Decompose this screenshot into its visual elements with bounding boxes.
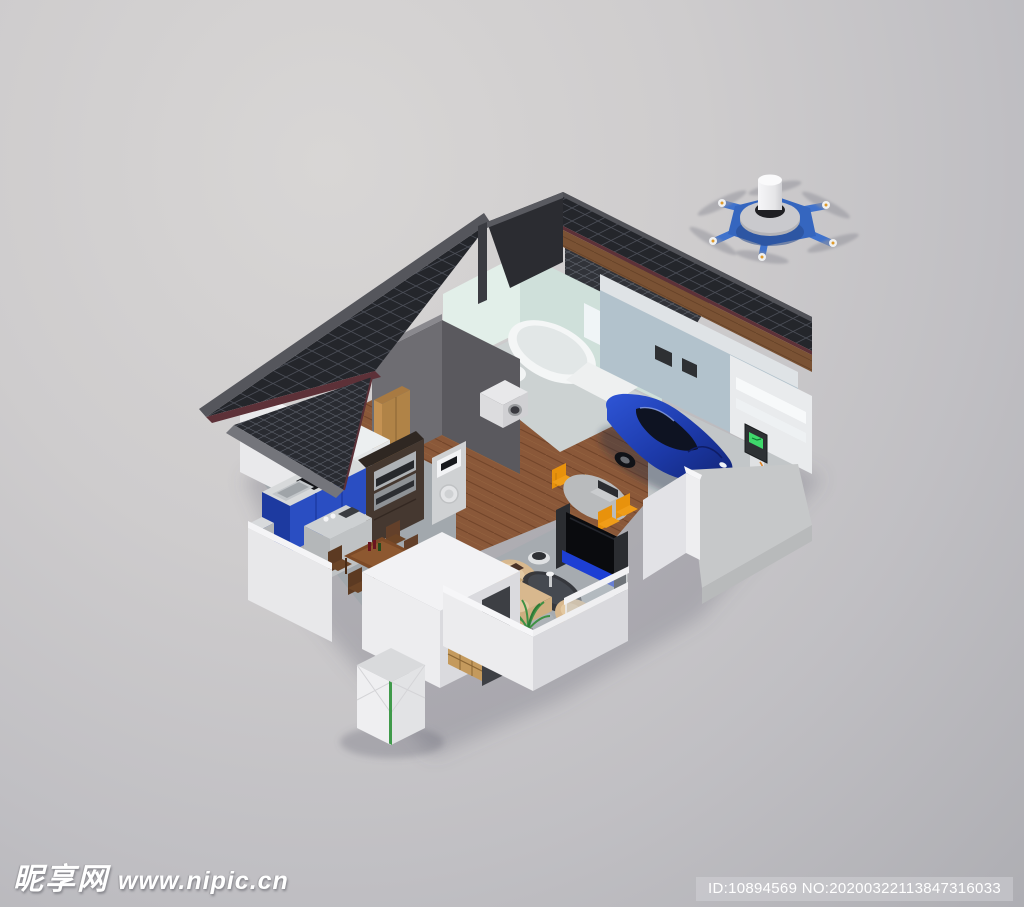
cube-green-stripe [389, 681, 392, 745]
hexacopter-drone [687, 175, 860, 267]
utility-cube [357, 648, 425, 745]
image-id-bar: ID:10894569 NO:20200322113847316033 [696, 877, 1013, 901]
watermark: 昵享网 www.nipic.cn [13, 854, 289, 898]
watermark-site-url: www.nipic.cn [118, 867, 289, 896]
watermark-site-name: 昵享网 [13, 854, 109, 898]
isometric-house-render [0, 0, 1024, 907]
render-scene: 昵享网 www.nipic.cn ID:10894569 NO:20200322… [0, 0, 1024, 907]
